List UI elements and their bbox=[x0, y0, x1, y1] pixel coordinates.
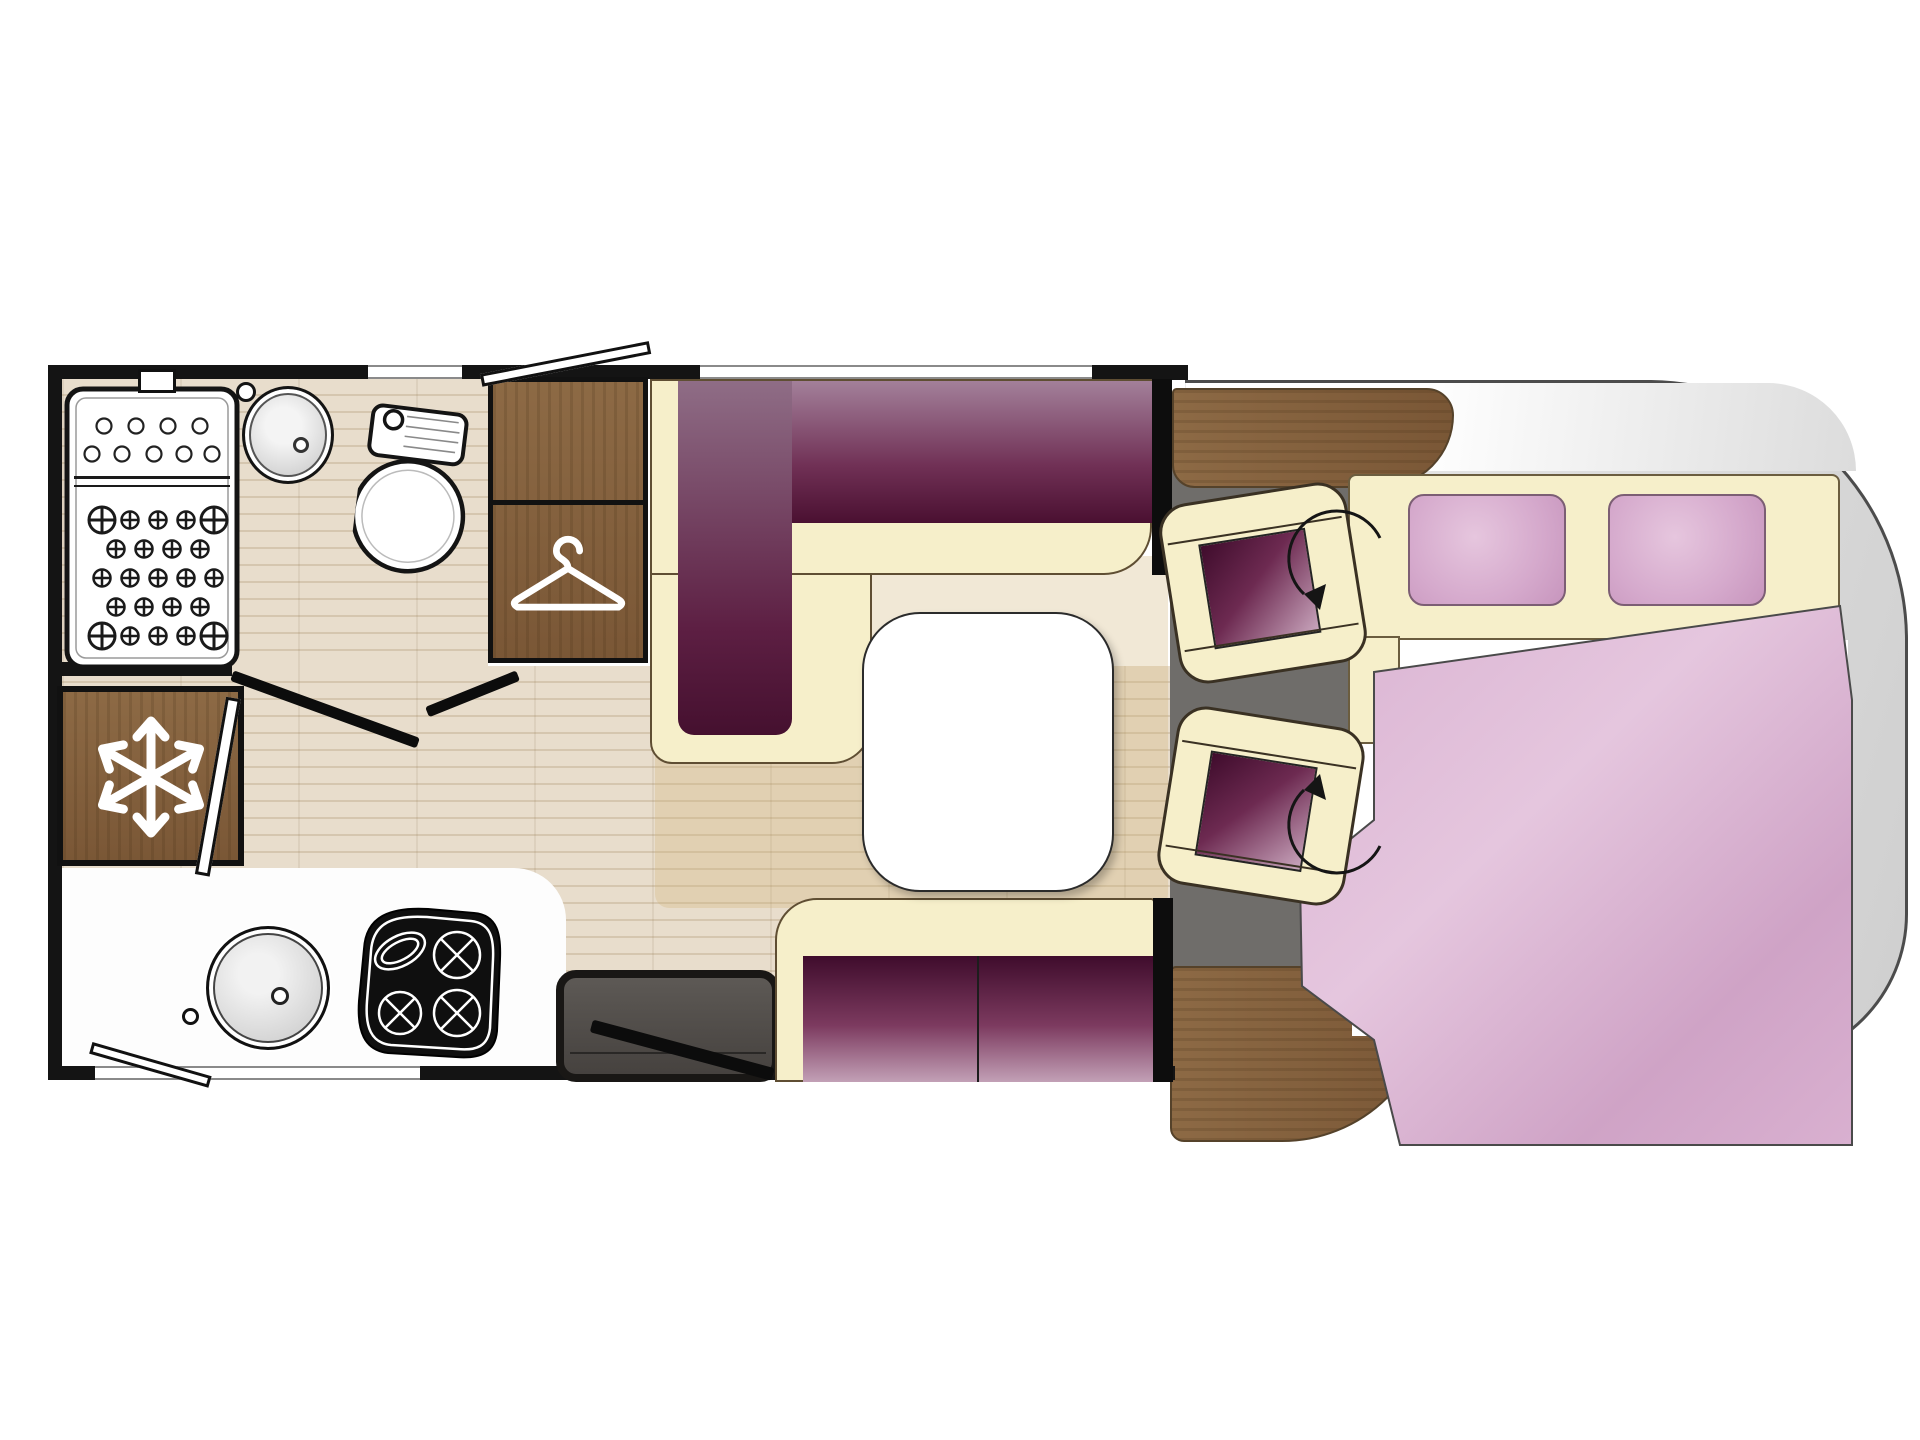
shower-door-handle bbox=[138, 369, 176, 393]
bed-pillow-left bbox=[1408, 494, 1566, 606]
wall-top-1 bbox=[48, 365, 368, 379]
floor-plan-canvas bbox=[0, 0, 1920, 1440]
washbasin-drain bbox=[293, 437, 309, 453]
shower-tray bbox=[64, 386, 240, 670]
sofa-bench-cushions bbox=[803, 956, 1153, 1082]
bed-pillow-right bbox=[1608, 494, 1766, 606]
washbasin-faucet-dot bbox=[236, 382, 256, 402]
sofa-bench-cushion-divider bbox=[977, 956, 979, 1082]
sofa-bench-end-panel bbox=[1153, 898, 1173, 1082]
dinette-window bbox=[700, 365, 1092, 379]
wardrobe-shelf-divider bbox=[493, 500, 643, 505]
sink-tap-dot bbox=[182, 1008, 199, 1025]
sink-drain bbox=[271, 987, 289, 1005]
wardrobe bbox=[488, 377, 648, 663]
hob bbox=[338, 893, 510, 1065]
kitchen-sink bbox=[206, 926, 330, 1050]
sofa-L-side-cushion bbox=[678, 381, 792, 735]
hanger-icon bbox=[505, 530, 631, 630]
rotation-arrow-bottom bbox=[1252, 742, 1402, 892]
wall-bottom-1 bbox=[48, 1066, 95, 1080]
washbasin bbox=[242, 386, 334, 484]
dinette-table bbox=[862, 612, 1114, 892]
bathroom-window bbox=[368, 365, 462, 379]
wall-top-3 bbox=[1092, 365, 1188, 380]
toilet bbox=[348, 398, 483, 586]
dashboard bbox=[1172, 388, 1454, 488]
rotation-arrow-top bbox=[1252, 498, 1402, 648]
